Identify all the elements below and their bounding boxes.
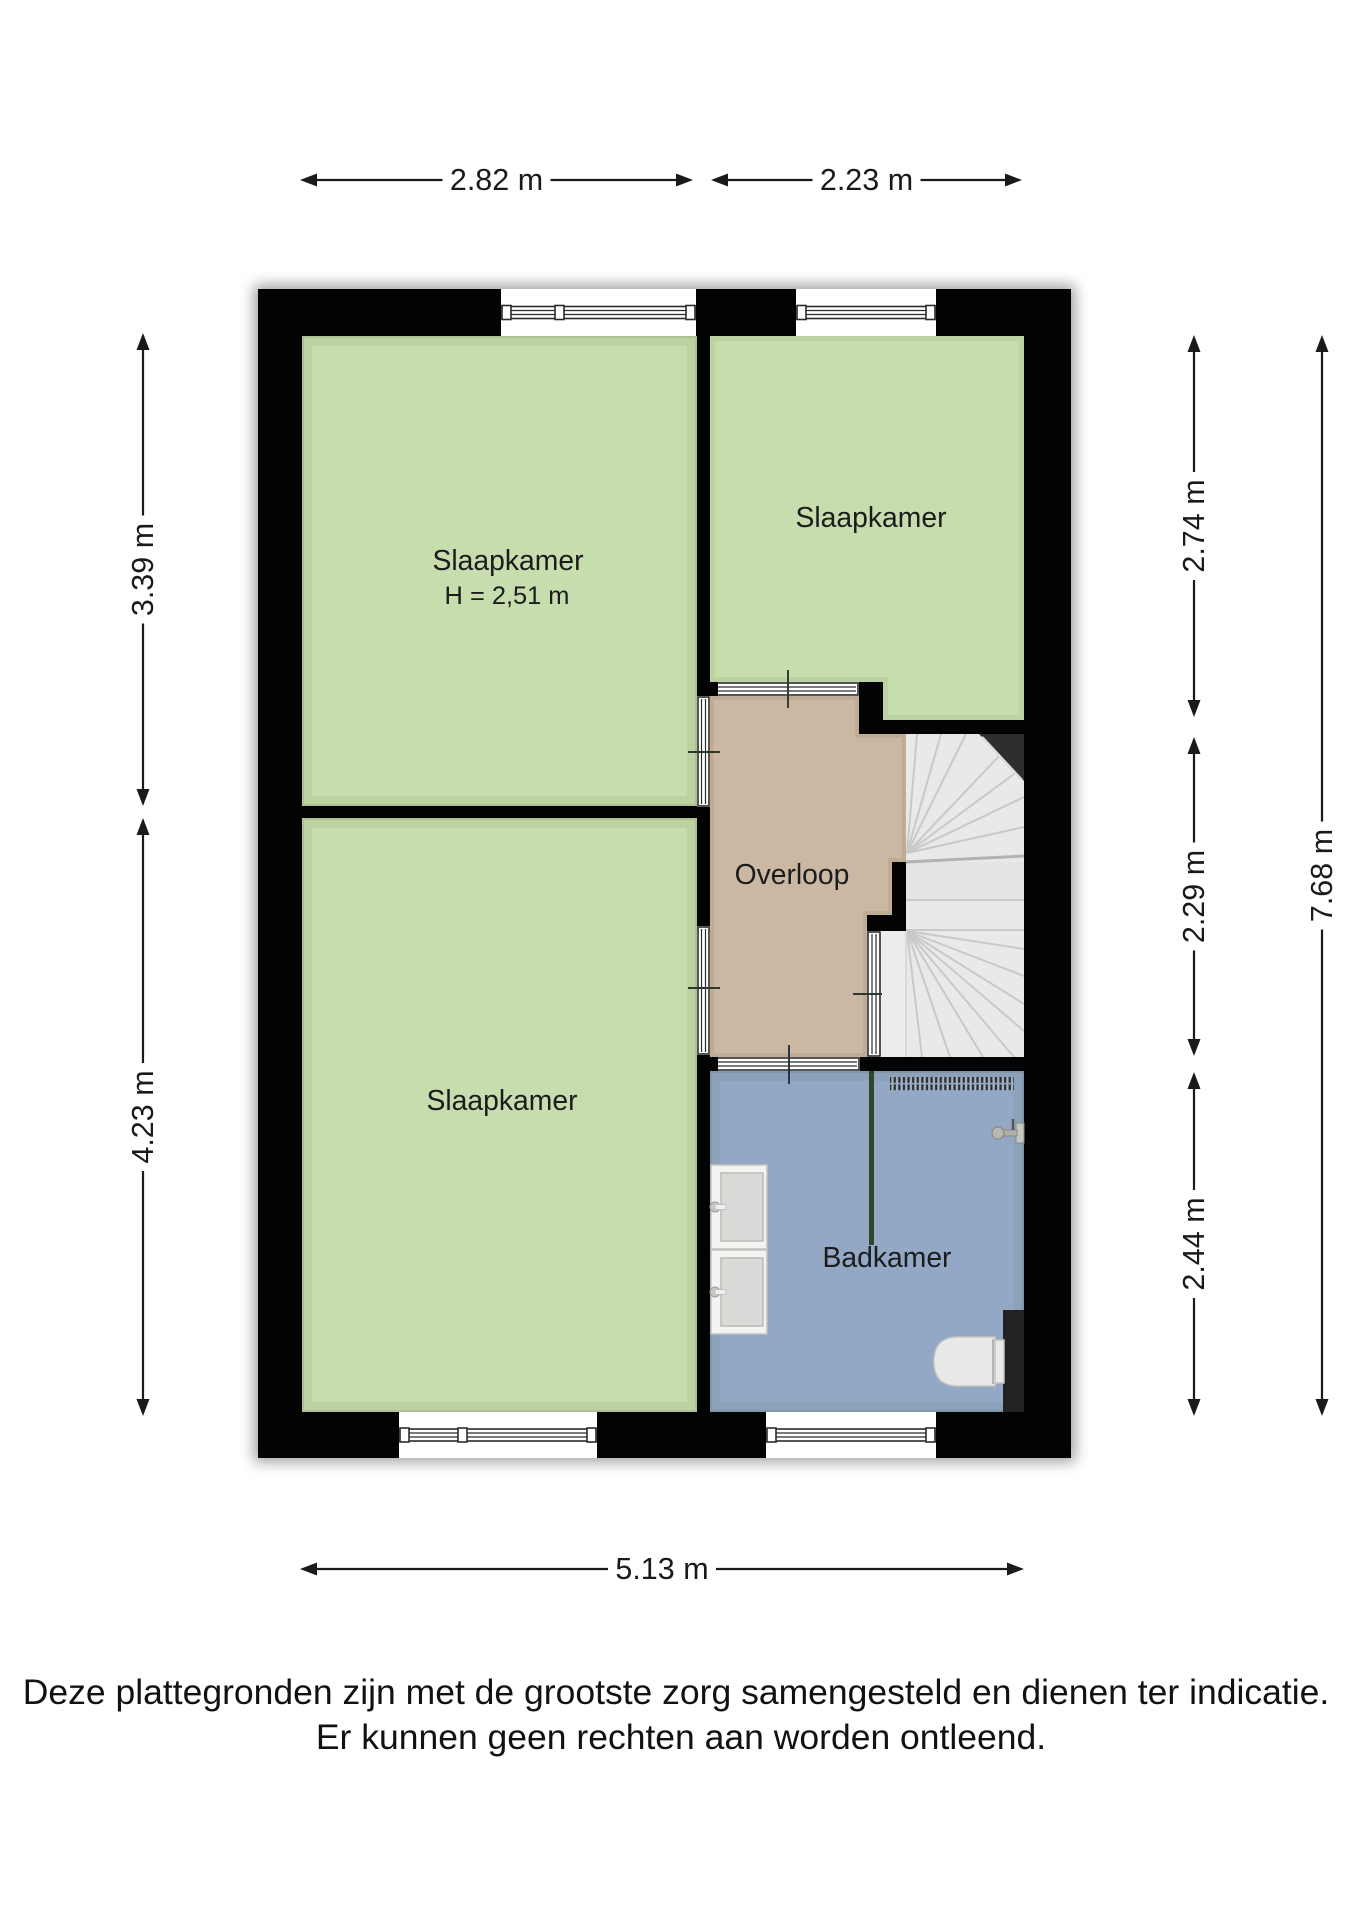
svg-text:2.29 m: 2.29 m xyxy=(1177,850,1211,943)
svg-text:Slaapkamer: Slaapkamer xyxy=(433,544,584,576)
svg-text:4.23 m: 4.23 m xyxy=(126,1070,160,1163)
svg-text:Overloop: Overloop xyxy=(735,858,850,890)
svg-text:7.68 m: 7.68 m xyxy=(1305,829,1339,922)
svg-text:2.74 m: 2.74 m xyxy=(1177,479,1211,572)
svg-text:H = 2,51 m: H = 2,51 m xyxy=(445,582,570,610)
svg-text:Deze plattegronden zijn met de: Deze plattegronden zijn met de grootste … xyxy=(23,1672,1329,1712)
svg-text:5.13 m: 5.13 m xyxy=(615,1552,708,1586)
svg-text:Er kunnen geen rechten aan wor: Er kunnen geen rechten aan worden ontlee… xyxy=(316,1717,1046,1757)
svg-text:Slaapkamer: Slaapkamer xyxy=(427,1084,578,1116)
svg-text:2.44 m: 2.44 m xyxy=(1177,1197,1211,1290)
svg-text:2.23 m: 2.23 m xyxy=(820,163,913,197)
svg-text:Slaapkamer: Slaapkamer xyxy=(796,501,947,533)
svg-text:2.82 m: 2.82 m xyxy=(450,163,543,197)
svg-text:Badkamer: Badkamer xyxy=(823,1241,952,1273)
svg-text:3.39 m: 3.39 m xyxy=(126,523,160,616)
